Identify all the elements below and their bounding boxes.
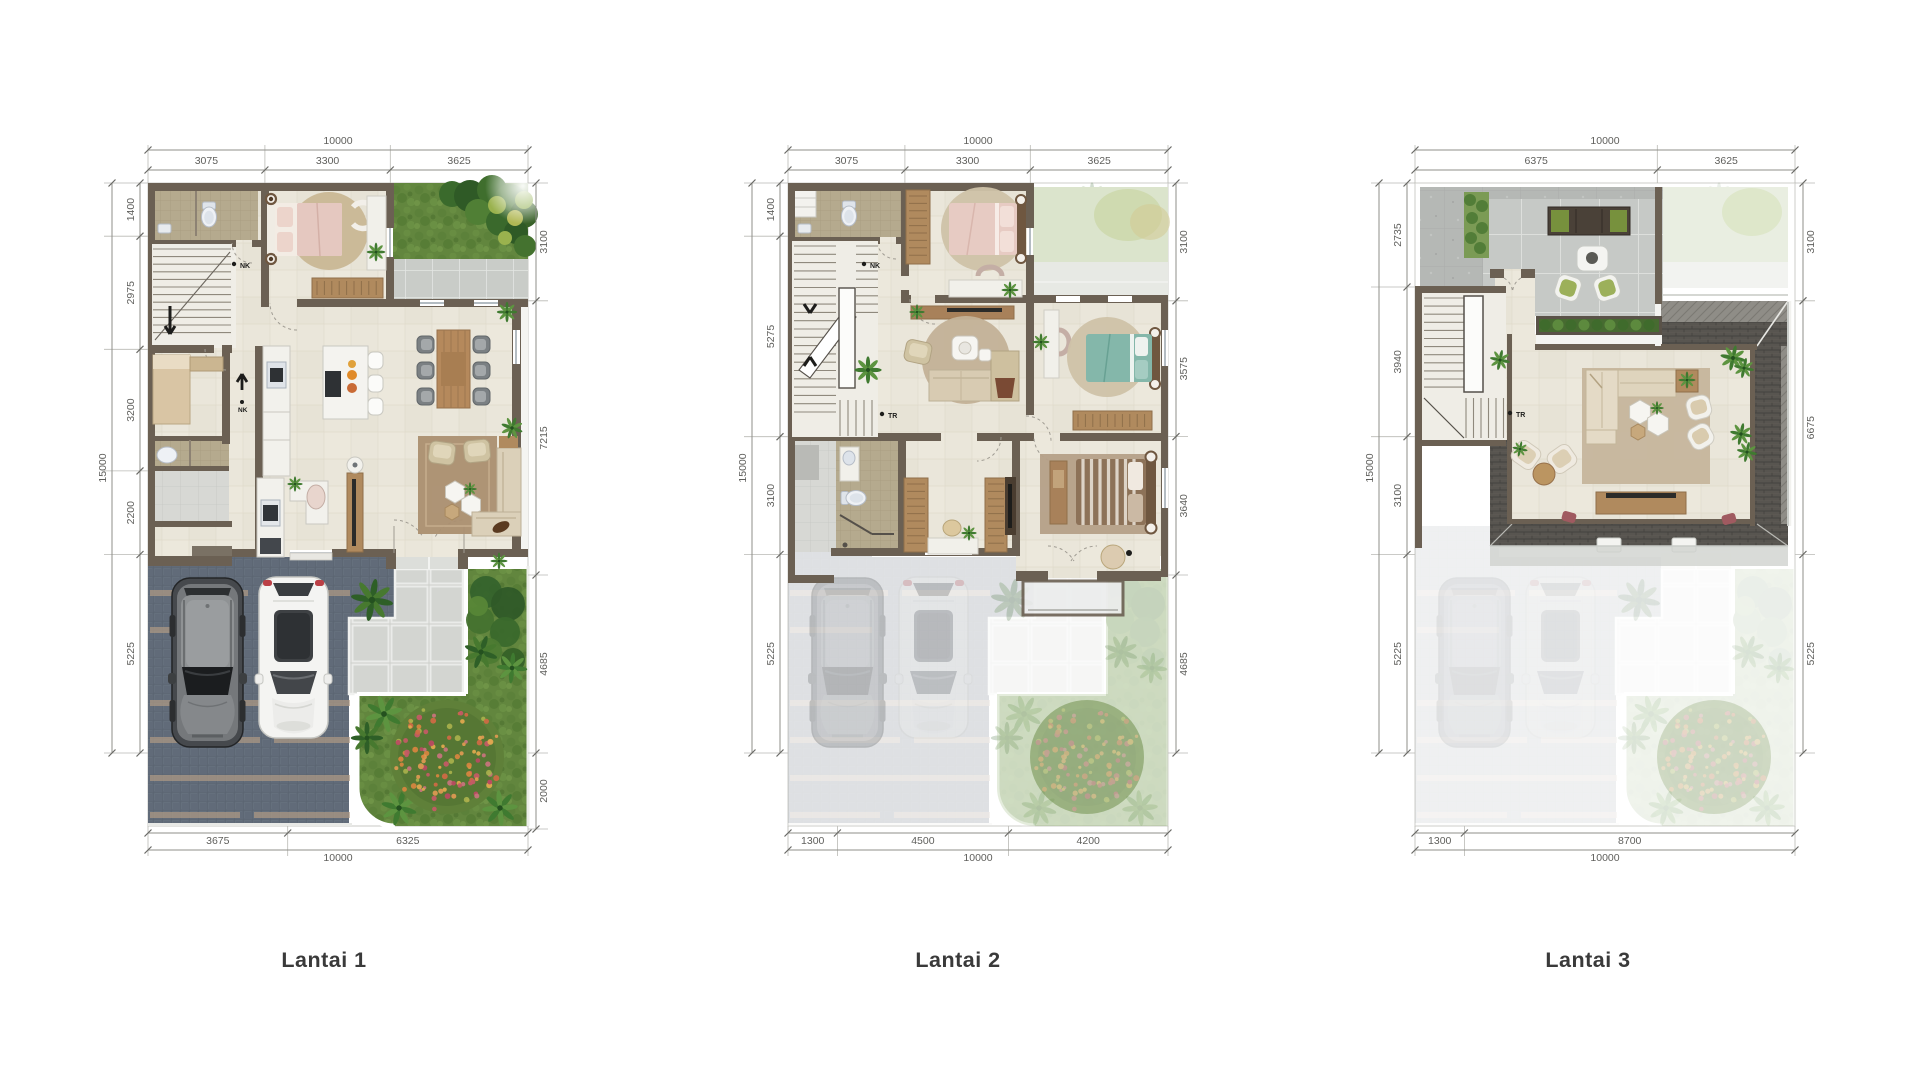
svg-text:4200: 4200 <box>1077 835 1101 847</box>
svg-text:2735: 2735 <box>1392 223 1404 247</box>
svg-text:3640: 3640 <box>1178 494 1190 518</box>
svg-text:4685: 4685 <box>1178 652 1190 676</box>
svg-text:3300: 3300 <box>316 155 340 167</box>
svg-text:5225: 5225 <box>125 642 137 666</box>
svg-text:1400: 1400 <box>765 198 777 222</box>
svg-text:NK: NK <box>870 263 880 270</box>
svg-text:5225: 5225 <box>765 642 777 666</box>
svg-text:15000: 15000 <box>1364 453 1376 482</box>
svg-text:10000: 10000 <box>1590 852 1619 864</box>
svg-text:4685: 4685 <box>538 652 550 676</box>
svg-text:3575: 3575 <box>1178 357 1190 381</box>
svg-text:1300: 1300 <box>801 835 825 847</box>
svg-text:3300: 3300 <box>956 155 980 167</box>
svg-text:15000: 15000 <box>97 453 109 482</box>
svg-text:TR: TR <box>1516 412 1525 419</box>
svg-text:3100: 3100 <box>1392 484 1404 508</box>
svg-text:Lantai 2: Lantai 2 <box>915 948 1000 972</box>
svg-text:3625: 3625 <box>1715 155 1739 167</box>
svg-text:1300: 1300 <box>1428 835 1452 847</box>
svg-text:6375: 6375 <box>1525 155 1549 167</box>
svg-text:5225: 5225 <box>1392 642 1404 666</box>
svg-text:2000: 2000 <box>538 779 550 803</box>
svg-text:8700: 8700 <box>1618 835 1642 847</box>
svg-text:Lantai 1: Lantai 1 <box>281 948 366 972</box>
svg-text:3675: 3675 <box>206 835 230 847</box>
svg-text:15000: 15000 <box>737 453 749 482</box>
svg-text:6675: 6675 <box>1805 416 1817 440</box>
svg-text:5275: 5275 <box>765 325 777 349</box>
svg-text:Lantai 3: Lantai 3 <box>1545 948 1630 972</box>
svg-text:4500: 4500 <box>911 835 935 847</box>
svg-text:3075: 3075 <box>835 155 859 167</box>
svg-text:TR: TR <box>888 413 897 420</box>
svg-text:3625: 3625 <box>1088 155 1112 167</box>
svg-text:NK: NK <box>240 263 250 270</box>
svg-text:3940: 3940 <box>1392 350 1404 374</box>
svg-text:3100: 3100 <box>538 230 550 254</box>
svg-text:3625: 3625 <box>447 155 471 167</box>
svg-text:2975: 2975 <box>125 281 137 305</box>
svg-text:3100: 3100 <box>1178 230 1190 254</box>
svg-text:1400: 1400 <box>125 198 137 222</box>
svg-text:10000: 10000 <box>323 135 352 147</box>
svg-text:3200: 3200 <box>125 398 137 422</box>
svg-text:7215: 7215 <box>538 426 550 450</box>
svg-text:5225: 5225 <box>1805 642 1817 666</box>
svg-text:3100: 3100 <box>765 484 777 508</box>
svg-text:3100: 3100 <box>1805 230 1817 254</box>
svg-text:6325: 6325 <box>396 835 420 847</box>
svg-text:10000: 10000 <box>963 135 992 147</box>
svg-text:10000: 10000 <box>963 852 992 864</box>
svg-text:2200: 2200 <box>125 501 137 525</box>
svg-text:3075: 3075 <box>195 155 219 167</box>
svg-text:10000: 10000 <box>1590 135 1619 147</box>
svg-text:10000: 10000 <box>323 852 352 864</box>
svg-text:NK: NK <box>238 407 248 414</box>
